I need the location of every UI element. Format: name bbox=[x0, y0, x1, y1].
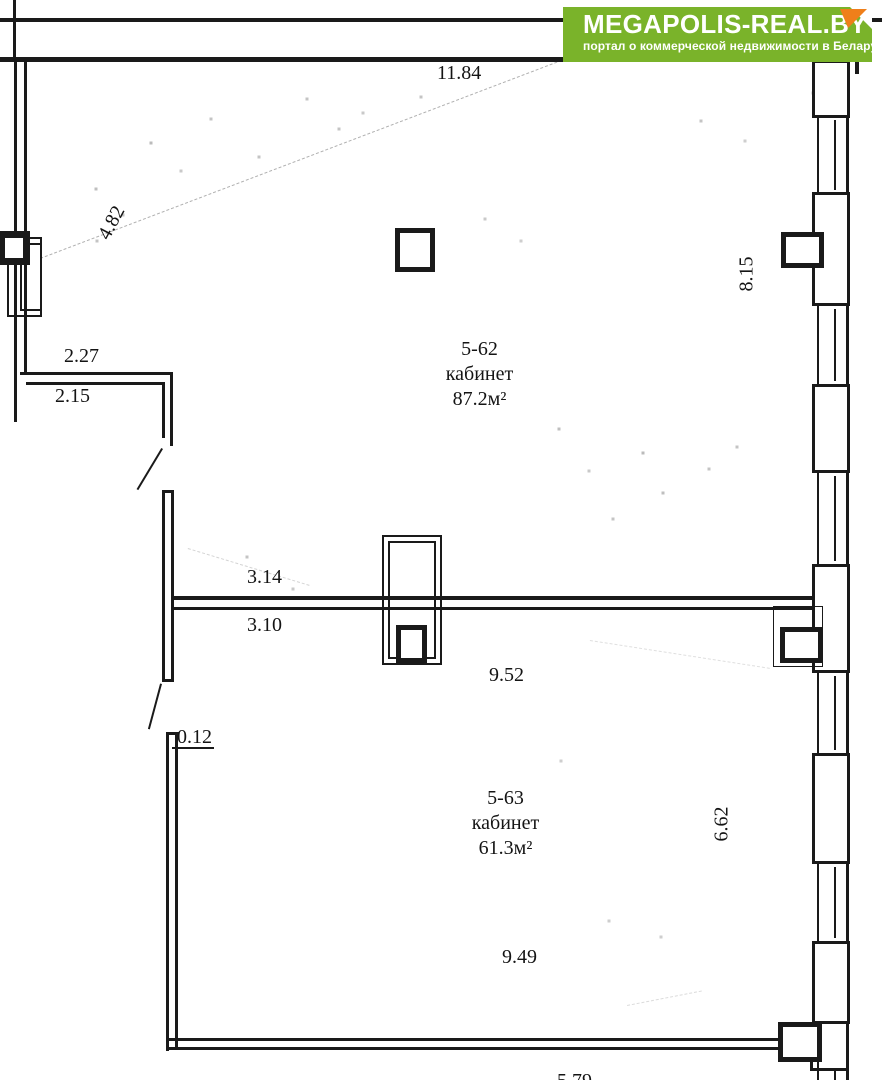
dimension-room-5-63-width: 9.49 bbox=[502, 946, 537, 969]
dimension-left-wall-upper: 4.82 bbox=[94, 202, 131, 244]
wall-lower-left-inner bbox=[175, 732, 178, 1047]
dimension-right-wall-lower: 6.62 bbox=[711, 807, 734, 842]
room-area: 87.2м² bbox=[417, 387, 542, 412]
radiator-upper bbox=[781, 232, 824, 268]
wall-pier bbox=[812, 384, 850, 473]
wall-alcove-inner bbox=[26, 382, 165, 385]
room-number: 5-63 bbox=[443, 786, 568, 811]
wall-pier bbox=[812, 941, 850, 1024]
wall-bottom-inner bbox=[166, 1047, 780, 1050]
column-left bbox=[0, 231, 30, 265]
window bbox=[834, 309, 837, 381]
wall-left-inner bbox=[24, 62, 27, 232]
floor-plan: 11.84 4.82 2.27 2.15 8.15 3.14 3.10 9.52… bbox=[0, 0, 882, 1080]
wall-alcove-right-inner bbox=[162, 382, 165, 438]
door-swing bbox=[137, 448, 163, 490]
wall-pier bbox=[812, 753, 850, 864]
door-swing bbox=[148, 683, 162, 729]
window bbox=[834, 476, 837, 561]
wall-stub-cap bbox=[162, 679, 174, 682]
dimension-room-5-62-width: 9.52 bbox=[489, 664, 524, 687]
dimension-alcove-outer: 2.27 bbox=[64, 345, 99, 368]
scan-crease bbox=[627, 990, 702, 1005]
column-bottom bbox=[778, 1022, 822, 1062]
wall-right-step bbox=[810, 1068, 848, 1071]
wall-alcove-outer bbox=[20, 372, 173, 375]
wall-pier bbox=[812, 60, 850, 118]
dimension-top-wall: 11.84 bbox=[437, 62, 481, 85]
wall-left-top bbox=[13, 0, 16, 62]
window bbox=[834, 867, 837, 938]
wall-stub-left bbox=[162, 490, 165, 682]
wall-left-outer bbox=[14, 265, 17, 387]
dimension-alcove-inner: 2.15 bbox=[55, 385, 90, 408]
wall-bottom-outer bbox=[166, 1038, 780, 1041]
wall-left-outer bbox=[14, 62, 17, 232]
wall-divider-north bbox=[174, 596, 815, 600]
window bbox=[834, 1071, 837, 1080]
room-area: 61.3м² bbox=[443, 836, 568, 861]
wall-alcove-right-outer bbox=[170, 372, 173, 446]
wall-stub-right bbox=[171, 490, 174, 682]
scan-noise bbox=[0, 0, 2, 2]
room-label-5-62: 5-62 кабинет 87.2м² bbox=[417, 337, 542, 412]
wall-top-corner bbox=[855, 60, 859, 74]
window bbox=[834, 676, 837, 750]
room-number: 5-62 bbox=[417, 337, 542, 362]
logo-title: MEGAPOLIS-REAL.BY bbox=[583, 10, 872, 39]
room-type: кабинет bbox=[417, 362, 542, 387]
column-top-middle bbox=[395, 228, 435, 272]
wall-divider-south bbox=[174, 607, 815, 611]
radiator-middle bbox=[780, 627, 823, 663]
dimension-bottom-wall: 5.79 bbox=[557, 1070, 592, 1080]
wall-lower-left-outer bbox=[166, 732, 169, 1051]
column-middle bbox=[396, 625, 427, 663]
window bbox=[834, 120, 837, 190]
wall-left-inner bbox=[24, 265, 27, 372]
wall-left-stub bbox=[14, 387, 17, 422]
dimension-divider-north: 3.14 bbox=[247, 566, 282, 589]
dimension-divider-south: 3.10 bbox=[247, 614, 282, 637]
dimension-wall-offset: 0.12 bbox=[177, 726, 212, 749]
room-label-5-63: 5-63 кабинет 61.3м² bbox=[443, 786, 568, 861]
logo-subtitle: портал о коммерческой недвижимости в Бел… bbox=[583, 39, 872, 53]
dimension-right-wall-upper: 8.15 bbox=[736, 257, 759, 292]
room-type: кабинет bbox=[443, 811, 568, 836]
logo-megapolis: MEGAPOLIS-REAL.BY портал о коммерческой … bbox=[563, 7, 872, 62]
scan-crease bbox=[590, 640, 770, 669]
